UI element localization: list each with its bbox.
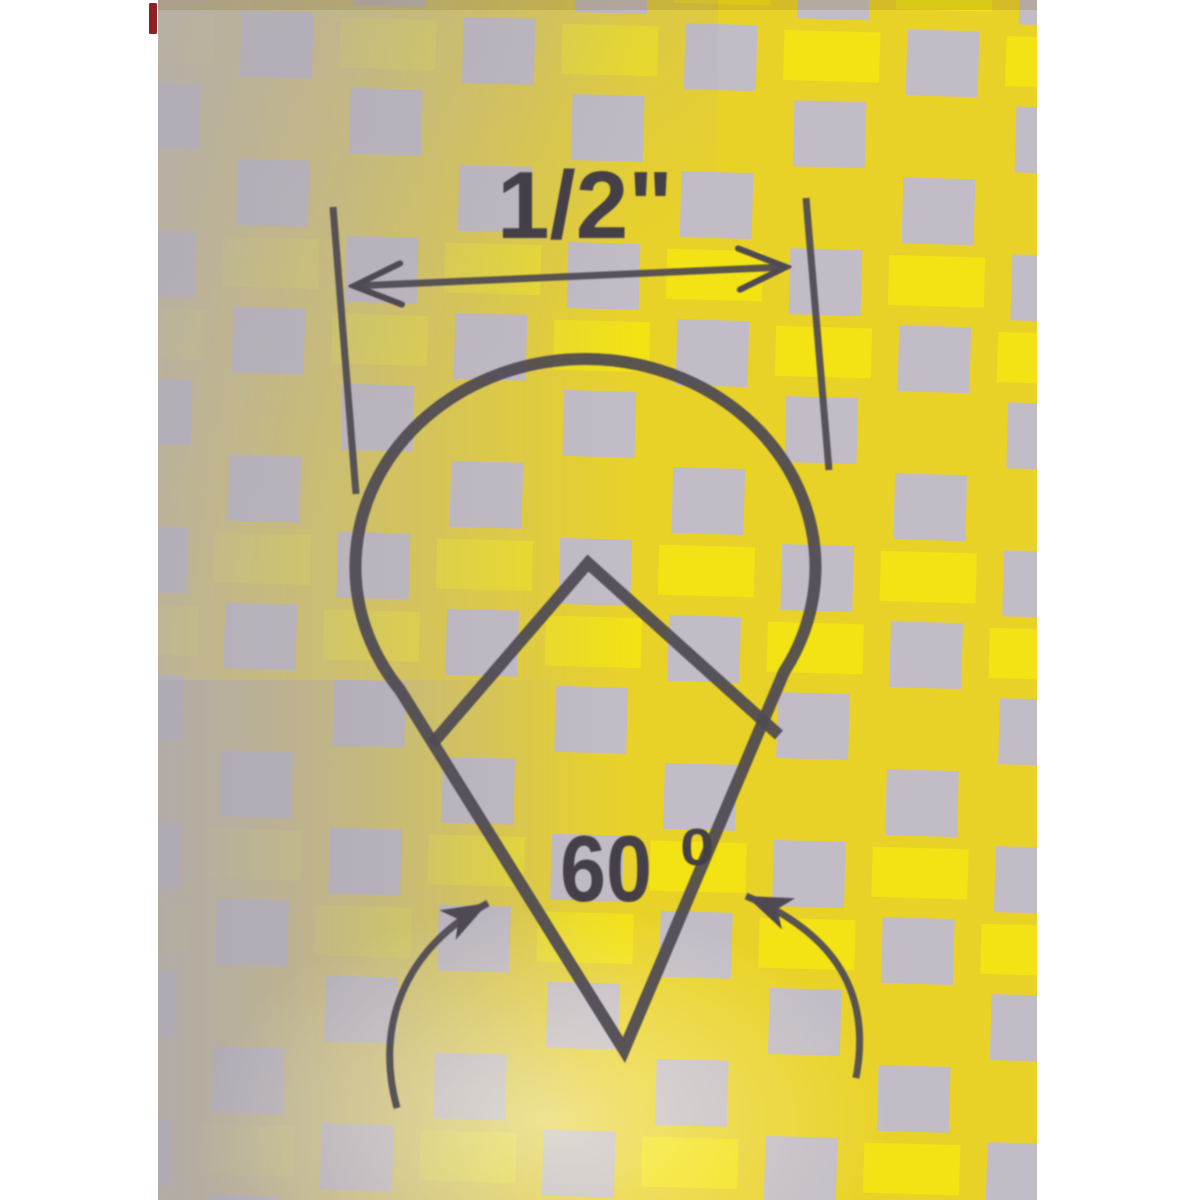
tip-angle-value: 60 [560,816,652,921]
top-edge-shade [158,0,1037,10]
diagram-photo: 1/2" 60 0 [0,0,1200,1200]
width-dimension-label: 1/2" [497,152,673,259]
screenshot-root: 1/2" 60 0 [0,0,1200,1200]
red-edge-mark [149,3,157,34]
tip-angle-degree-superscript: 0 [680,819,714,877]
